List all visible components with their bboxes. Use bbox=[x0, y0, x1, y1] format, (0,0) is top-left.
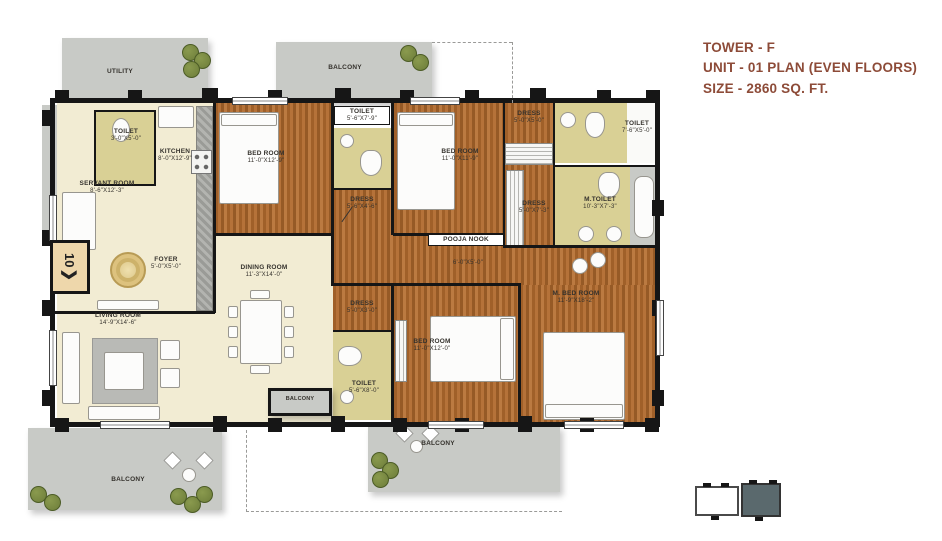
sofa bbox=[62, 332, 80, 404]
room-name: BED ROOM bbox=[420, 148, 500, 156]
room-dims: 11'-0"X12'-0" bbox=[396, 346, 468, 353]
unit-number: 10 bbox=[62, 253, 77, 267]
column bbox=[42, 110, 54, 126]
dashed-boundary bbox=[432, 42, 512, 43]
room-label-balcony-inner: BALCONY bbox=[272, 396, 328, 403]
armchair bbox=[160, 340, 180, 360]
dining-chair bbox=[228, 346, 238, 358]
column bbox=[213, 416, 227, 432]
unit-plan-name: UNIT - 01 PLAN (EVEN FLOORS) bbox=[703, 58, 917, 78]
column bbox=[331, 416, 345, 432]
room-dims: 5'-0"X7'-3" bbox=[512, 208, 556, 215]
column bbox=[597, 90, 611, 102]
wall bbox=[331, 283, 521, 286]
column bbox=[530, 88, 546, 102]
room-dims: 5'-6"X8'-0" bbox=[338, 388, 390, 395]
room-label-bed-room-1: BED ROOM 11'-0"X12'-9" bbox=[226, 150, 306, 165]
column bbox=[55, 418, 69, 432]
room-label-m-bed-room: M. BED ROOM 11'-9"X18'-2" bbox=[536, 290, 616, 305]
room-dims: 5'-6"X7'-9" bbox=[337, 116, 387, 123]
room-name: UTILITY bbox=[75, 68, 165, 76]
dining-chair bbox=[284, 326, 294, 338]
room-dims: 7'-6"X5'-0" bbox=[616, 128, 658, 135]
column bbox=[518, 416, 532, 432]
column bbox=[652, 390, 664, 406]
wc-icon bbox=[598, 172, 620, 198]
wall bbox=[331, 103, 334, 285]
room-name: M.TOILET bbox=[568, 196, 632, 204]
room-dims: 6'-0"X5'-0" bbox=[446, 260, 490, 267]
window bbox=[49, 330, 57, 386]
room-name: POOJA NOOK bbox=[431, 236, 501, 244]
sink-icon bbox=[560, 112, 576, 128]
dining-chair bbox=[284, 306, 294, 318]
room-label-balcony-bottom-right: BALCONY bbox=[400, 440, 476, 448]
entry-marker: 10 ❯ bbox=[50, 240, 90, 294]
room-label-utility: UTILITY bbox=[75, 68, 165, 76]
tree-icon bbox=[44, 494, 61, 511]
room-dims: 5'-0"X3'-0" bbox=[336, 308, 388, 315]
room-dims: 14'-9"X14'-6" bbox=[78, 320, 158, 327]
coffee-table bbox=[104, 352, 144, 390]
column bbox=[652, 200, 664, 216]
tower-name: TOWER - F bbox=[703, 38, 917, 58]
column bbox=[55, 90, 69, 102]
column bbox=[42, 300, 54, 316]
room-dims: 10'-3"X7'-3" bbox=[568, 204, 632, 211]
room-name: BALCONY bbox=[88, 476, 168, 484]
wall bbox=[655, 103, 660, 425]
room-label-toilet-right: TOILET 7'-6"X5'-0" bbox=[616, 120, 658, 135]
room-name: BALCONY bbox=[272, 396, 328, 403]
wardrobe-icon bbox=[505, 143, 553, 165]
room-label-dress-top: DRESS 5'-0"X5'-0" bbox=[506, 110, 552, 125]
room-label-servant-room: SERVANT ROOM 8'-6"X12'-3" bbox=[62, 180, 152, 195]
window bbox=[49, 195, 57, 241]
dashed-boundary bbox=[246, 430, 247, 512]
wc-icon bbox=[585, 112, 605, 138]
room-label-living-room: LIVING ROOM 14'-9"X14'-6" bbox=[78, 312, 158, 327]
wall bbox=[503, 245, 658, 248]
wc-icon bbox=[338, 346, 362, 366]
entry-arrow-icon: ❯ bbox=[61, 268, 79, 281]
bed-pillow bbox=[545, 404, 623, 418]
room-dims: 5'-0"X5'-0" bbox=[506, 118, 552, 125]
column bbox=[268, 418, 282, 432]
wall bbox=[391, 285, 394, 422]
sink-icon bbox=[340, 134, 354, 148]
room-label-toilet-top: TOILET 5'-6"X7'-9" bbox=[334, 106, 390, 125]
room-name: TOILET bbox=[337, 108, 387, 116]
wall bbox=[553, 103, 555, 247]
sofa bbox=[88, 406, 160, 420]
wall bbox=[518, 285, 521, 422]
room-label-balcony-top: BALCONY bbox=[310, 64, 380, 72]
key-plan-tick bbox=[703, 483, 711, 487]
room-name: KITCHEN bbox=[140, 148, 210, 156]
room-name: DRESS bbox=[336, 300, 388, 308]
armchair bbox=[160, 368, 180, 388]
room-name: DINING ROOM bbox=[226, 264, 302, 272]
wall bbox=[555, 165, 658, 167]
dining-chair bbox=[250, 365, 270, 374]
window bbox=[410, 97, 460, 105]
room-dims: 11'-0"X12'-9" bbox=[226, 158, 306, 165]
room-dims: 3'-0"X5'-0" bbox=[98, 136, 154, 143]
dining-chair bbox=[250, 290, 270, 299]
window bbox=[100, 421, 170, 429]
room-name: TOILET bbox=[616, 120, 658, 128]
wall bbox=[503, 103, 505, 247]
window bbox=[428, 421, 484, 429]
room-name: BED ROOM bbox=[396, 338, 468, 346]
room-dims: 8'-6"X12'-3" bbox=[62, 188, 152, 195]
dining-chair bbox=[284, 346, 294, 358]
room-dims: 5'-6"X4'-6" bbox=[336, 204, 388, 211]
room-label-balcony-bottom-left: BALCONY bbox=[88, 476, 168, 484]
key-plan-other-unit bbox=[695, 486, 739, 516]
room-dims: 5'-0"X5'-0" bbox=[138, 264, 194, 271]
key-plan-tick bbox=[769, 480, 777, 484]
room-name: LIVING ROOM bbox=[78, 312, 158, 320]
key-plan-tick bbox=[755, 517, 763, 521]
wc-icon bbox=[360, 150, 382, 176]
room-name: SERVANT ROOM bbox=[62, 180, 152, 188]
column bbox=[202, 88, 218, 102]
window bbox=[232, 97, 288, 105]
room-label-pooja-nook: POOJA NOOK bbox=[428, 234, 504, 246]
dining-chair bbox=[228, 326, 238, 338]
room-label-foyer: FOYER 5'-0"X5'-0" bbox=[138, 256, 194, 271]
unit-size: SIZE - 2860 SQ. FT. bbox=[703, 79, 917, 99]
column bbox=[645, 418, 659, 432]
wall bbox=[333, 330, 391, 332]
room-dims: 11'-9"X18'-2" bbox=[536, 298, 616, 305]
room-name: DRESS bbox=[506, 110, 552, 118]
bathtub-icon bbox=[634, 176, 654, 238]
wall bbox=[333, 188, 391, 190]
tree-icon bbox=[412, 54, 429, 71]
room-label-dress-bed-3: DRESS 5'-0"X3'-0" bbox=[336, 300, 388, 315]
bed-pillow bbox=[221, 114, 277, 126]
room-label-dress-master: DRESS 5'-0"X7'-3" bbox=[512, 200, 556, 215]
room-name: BALCONY bbox=[400, 440, 476, 448]
tree-icon bbox=[183, 61, 200, 78]
room-name: M. BED ROOM bbox=[536, 290, 616, 298]
ottoman bbox=[590, 252, 606, 268]
column bbox=[335, 88, 351, 102]
room-name: TOILET bbox=[98, 128, 154, 136]
tree-icon bbox=[372, 471, 389, 488]
toilet-bottom-floor bbox=[333, 332, 391, 420]
ottoman bbox=[572, 258, 588, 274]
dashed-boundary bbox=[246, 511, 562, 512]
wall bbox=[213, 103, 216, 313]
room-dims: 11'-3"X14'-0" bbox=[226, 272, 302, 279]
tv-console bbox=[97, 300, 159, 310]
room-name: FOYER bbox=[138, 256, 194, 264]
key-plan-tick bbox=[749, 480, 757, 484]
plan-title: TOWER - F UNIT - 01 PLAN (EVEN FLOORS) S… bbox=[703, 38, 917, 99]
room-dims: 8'-0"X12'-9" bbox=[140, 156, 210, 163]
room-name: DRESS bbox=[336, 196, 388, 204]
room-label-toilet-kitchen: TOILET 3'-0"X5'-0" bbox=[98, 128, 154, 143]
dining-chair bbox=[228, 306, 238, 318]
column bbox=[42, 390, 54, 406]
room-name: DRESS bbox=[512, 200, 556, 208]
kitchen-counter bbox=[196, 106, 213, 311]
sink-icon bbox=[606, 226, 622, 242]
wall bbox=[391, 103, 394, 235]
room-label-dining-room: DINING ROOM 11'-3"X14'-0" bbox=[226, 264, 302, 279]
tree-icon bbox=[196, 486, 213, 503]
key-plan bbox=[693, 478, 785, 528]
room-label-dress-bed-1: DRESS 5'-6"X4'-6" bbox=[336, 196, 388, 211]
room-name: BALCONY bbox=[310, 64, 380, 72]
room-label-m-toilet: M.TOILET 10'-3"X7'-3" bbox=[568, 196, 632, 211]
column bbox=[393, 418, 407, 432]
room-label-kitchen: KITCHEN 8'-0"X12'-9" bbox=[140, 148, 210, 163]
room-name: BED ROOM bbox=[226, 150, 306, 158]
room-dims-pooja-nook: 6'-0"X5'-0" bbox=[446, 260, 490, 267]
column bbox=[128, 90, 142, 102]
room-label-bed-room-3: BED ROOM 11'-0"X12'-0" bbox=[396, 338, 468, 353]
key-plan-current-unit bbox=[741, 483, 781, 517]
column bbox=[465, 90, 479, 102]
room-label-toilet-bottom: TOILET 5'-6"X8'-0" bbox=[338, 380, 390, 395]
window bbox=[656, 300, 664, 356]
sink-icon bbox=[578, 226, 594, 242]
dining-table bbox=[240, 300, 282, 364]
bed-pillow bbox=[500, 318, 514, 380]
column bbox=[646, 90, 660, 102]
dashed-boundary bbox=[512, 42, 513, 103]
wall bbox=[213, 233, 333, 236]
room-name: TOILET bbox=[338, 380, 390, 388]
room-dims: 11'-0"X11'-9" bbox=[420, 156, 500, 163]
key-plan-tick bbox=[711, 516, 719, 520]
balcony-table bbox=[182, 468, 196, 482]
bed-pillow bbox=[399, 114, 453, 126]
key-plan-tick bbox=[721, 483, 729, 487]
room-label-bed-room-2: BED ROOM 11'-0"X11'-9" bbox=[420, 148, 500, 163]
floor-plan-page: UTILITY BALCONY TOILET 3'-0"X5'-0" KITCH… bbox=[0, 0, 942, 541]
window bbox=[564, 421, 624, 429]
fridge-icon bbox=[158, 106, 194, 128]
